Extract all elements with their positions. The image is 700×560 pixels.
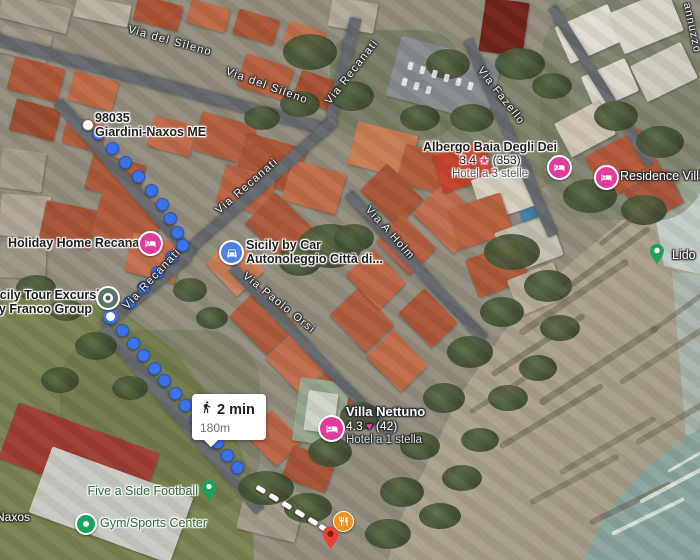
heart-icon: ♥ xyxy=(366,421,373,433)
lodging-icon[interactable] xyxy=(318,415,345,442)
route-dot xyxy=(171,226,184,239)
poi-line: by Franco Group xyxy=(0,302,92,316)
review-count: (353) xyxy=(493,153,521,167)
poi-five-a-side-label[interactable]: Five a Side Football xyxy=(60,484,198,498)
route-dot xyxy=(221,449,234,462)
poi-subtitle: Hotel a 3 stelle xyxy=(412,168,568,181)
poi-lido-label[interactable]: Lido xyxy=(672,248,696,262)
poi-villa-nettuno-label[interactable]: Villa Nettuno 4.3 ♥ (42) Hotel a 1 stell… xyxy=(346,405,425,447)
poi-sicily-tour-label[interactable]: Sicily Tour Excursion by Franco Group xyxy=(0,288,92,317)
poi-sicily-by-car-label[interactable]: Sicily by Car Autonoleggio Città di... xyxy=(246,238,383,267)
poi-name: Villa Nettuno xyxy=(346,405,425,420)
route-dot xyxy=(137,349,150,362)
poi-line: Sicily Tour Excursion xyxy=(0,288,92,302)
route-dash xyxy=(256,485,267,494)
route-dot xyxy=(116,324,129,337)
destination-pin-icon[interactable] xyxy=(317,524,344,556)
review-count: (42) xyxy=(376,419,397,433)
origin-city: Giardini-Naxos ME xyxy=(95,125,206,139)
route-dot xyxy=(156,198,169,211)
locality-label: Naxos xyxy=(0,511,30,525)
route-dash xyxy=(282,501,293,510)
route-dot xyxy=(231,461,244,474)
route-dot xyxy=(164,212,177,225)
origin-address-label[interactable]: 98035 Giardini-Naxos ME xyxy=(95,111,206,140)
route-waypoint-dot xyxy=(103,309,118,324)
route-time-callout[interactable]: 2 min 180m xyxy=(192,394,266,440)
poi-gym-label[interactable]: Gym/Sports Center xyxy=(100,516,207,530)
lido-pin-icon[interactable] xyxy=(645,240,669,273)
rating-value: 4.3 xyxy=(346,419,363,433)
route-start-dot xyxy=(82,119,94,131)
route-dot xyxy=(127,337,140,350)
route-dot xyxy=(148,362,161,375)
football-pin-icon[interactable] xyxy=(197,476,221,509)
route-dot xyxy=(132,170,145,183)
satellite-map[interactable]: Via del Sileno Via del Sileno Via Recana… xyxy=(0,0,700,560)
route-dot xyxy=(179,399,192,412)
poi-albergo-label[interactable]: Albergo Baia Degli Dei 3.4 ★ (353) Hotel… xyxy=(412,140,568,181)
lodging-icon[interactable] xyxy=(138,231,163,256)
car-rental-icon[interactable] xyxy=(219,240,244,265)
route-duration: 2 min xyxy=(217,402,255,418)
origin-postal-code: 98035 xyxy=(95,111,206,125)
attraction-icon[interactable] xyxy=(96,286,120,310)
rating-value: 3.4 xyxy=(459,153,476,167)
route-dot xyxy=(158,374,171,387)
walking-icon xyxy=(200,399,213,420)
route-dot xyxy=(145,184,158,197)
route-dot xyxy=(106,142,119,155)
route-distance: 180m xyxy=(200,421,255,435)
poi-holiday-home-label[interactable]: Holiday Home Recanati xyxy=(8,236,134,250)
route-dash xyxy=(295,509,306,518)
poi-line: Autonoleggio Città di... xyxy=(246,252,383,266)
rating-row: 4.3 ♥ (42) xyxy=(346,420,425,434)
poi-line: Sicily by Car xyxy=(246,238,383,252)
gym-icon[interactable] xyxy=(75,513,97,535)
rating-row: 3.4 ★ (353) xyxy=(412,154,568,168)
star-icon: ★ xyxy=(479,155,489,167)
poi-residence-label[interactable]: Residence Villa xyxy=(620,169,700,183)
route-dot xyxy=(119,156,132,169)
lodging-icon[interactable] xyxy=(594,165,619,190)
route-dot xyxy=(169,387,182,400)
route-dash xyxy=(269,493,280,502)
poi-subtitle: Hotel a 1 stella xyxy=(346,434,425,447)
lodging-icon[interactable] xyxy=(547,155,572,180)
